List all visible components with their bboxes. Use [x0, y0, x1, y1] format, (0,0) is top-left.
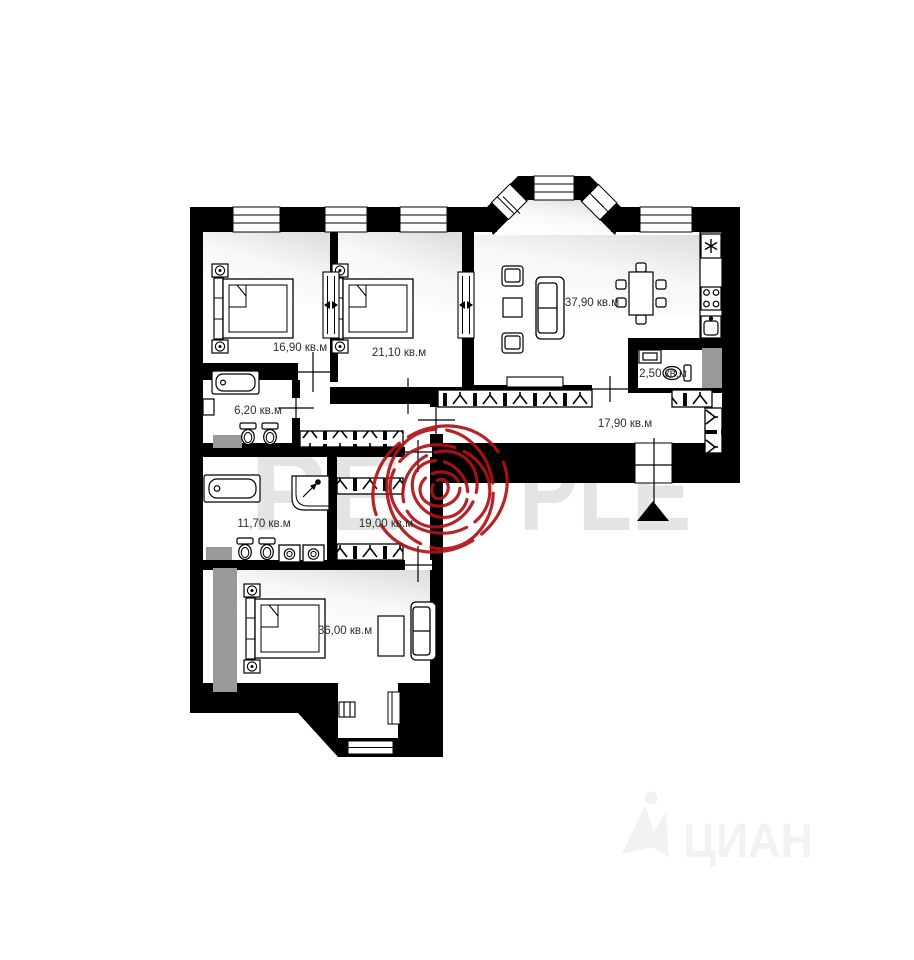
sofa-icon	[536, 277, 564, 339]
window	[325, 207, 367, 232]
stove-icon	[701, 287, 721, 310]
shaft	[206, 547, 232, 560]
cian-watermark-text: ЦИАН	[683, 815, 813, 868]
sliding-door-icon	[458, 272, 474, 338]
room-area-label-bedroom-1: 16,90 кв.м	[273, 342, 327, 354]
sink-icon	[203, 399, 214, 415]
fridge-icon	[701, 234, 721, 258]
toilet-icon	[240, 423, 256, 445]
shaft	[213, 568, 237, 692]
radiator-icon	[339, 702, 355, 717]
toilet-icon	[259, 538, 275, 560]
room-area-label-hallway: 19,00 кв.м	[359, 518, 413, 530]
room-area-label-bedroom-3: 36,00 кв.м	[318, 625, 372, 637]
room-area-label-wc: 2,50 кв.м	[639, 368, 687, 380]
wardrobe	[438, 390, 592, 407]
shaft	[702, 348, 722, 388]
sliding-door-icon	[323, 272, 339, 338]
washing-machine-icon	[279, 545, 300, 562]
wardrobe	[705, 408, 722, 453]
cian-bird-icon	[622, 806, 669, 857]
floor-plan-page: PE PLE ЦИАН	[0, 0, 914, 960]
sofa-icon	[411, 602, 436, 660]
window	[400, 207, 447, 232]
toilet-icon	[237, 538, 253, 560]
kitchen-column	[700, 232, 722, 338]
kitchen-sink-icon	[701, 316, 721, 338]
window	[233, 207, 280, 232]
wardrobe	[300, 431, 403, 447]
cian-logo-watermark: ЦИАН	[622, 792, 813, 869]
room-area-label-bedroom-2: 21,10 кв.м	[372, 347, 426, 359]
room-area-label-living-kitchen: 37,90 кв.м	[565, 297, 619, 309]
bathtub-icon	[212, 371, 259, 394]
window	[640, 207, 692, 232]
floor-plan: PE PLE ЦИАН	[0, 0, 914, 960]
coffee-table-icon	[503, 298, 522, 317]
room-area-label-bathroom-2: 11,70 кв.м	[237, 518, 290, 530]
armchair-icon	[502, 333, 523, 353]
bathtub-icon	[204, 475, 260, 502]
window-balcony-door	[388, 692, 400, 724]
washing-machine-icon	[303, 545, 324, 562]
wardrobe	[337, 544, 403, 560]
window-bottom	[348, 741, 393, 754]
bay-window-top	[534, 176, 574, 200]
wardrobe	[672, 390, 712, 407]
armchair-icon	[502, 266, 523, 286]
toilet-icon	[262, 423, 278, 445]
shower-icon	[292, 476, 329, 510]
shaft	[213, 435, 242, 448]
room-area-label-bathroom-1: 6,20 кв.м	[234, 405, 282, 417]
sideboard-icon	[507, 377, 563, 387]
wardrobe	[337, 478, 403, 494]
room-area-label-corridor: 17,90 кв.м	[598, 418, 652, 430]
table-icon	[378, 616, 404, 656]
